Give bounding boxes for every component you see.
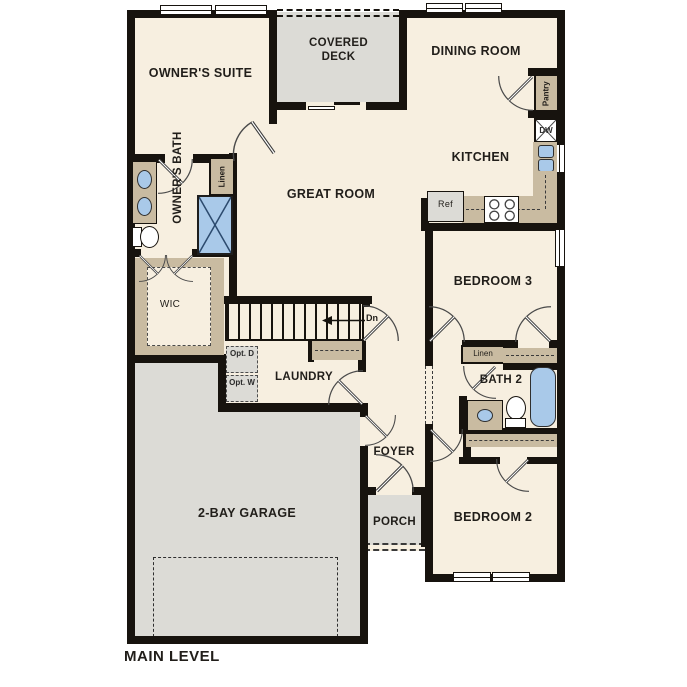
sliding-door-panel-2 (308, 106, 335, 110)
room-label-owners-suite: OWNER'S SUITE (143, 66, 258, 81)
door-bedroom2-main (496, 459, 529, 492)
owners-linen-label: Linen (217, 160, 226, 194)
room-label-bath2: BATH 2 (478, 374, 524, 388)
porch-edge-dashed (364, 543, 425, 545)
window-bedroom2-2 (492, 572, 530, 582)
wall-right-exterior (557, 10, 565, 582)
outside-below-porch (368, 551, 425, 584)
room-label-bedroom2: BEDROOM 2 (430, 510, 556, 525)
bath2-toilet-bowl (506, 396, 526, 420)
door-owners-suite (232, 115, 278, 163)
counter-dashed-v (545, 175, 546, 209)
window-suite-1 (160, 5, 212, 15)
room-label-porch: PORCH (366, 516, 423, 530)
garage-door-dashed (153, 557, 338, 637)
plan-title: MAIN LEVEL (124, 648, 324, 666)
wall-foyer-porch-a (360, 487, 376, 495)
bath2-tub (530, 367, 556, 427)
room-label-laundry: LAUNDRY (256, 371, 352, 385)
owners-sink-1 (137, 170, 152, 189)
window-bedroom3 (555, 229, 565, 267)
floor-plan: Dn Linen Pantry DW (0, 0, 687, 687)
room-label-covered-deck: COVERED DECK (296, 37, 381, 64)
window-bedroom2-1 (453, 572, 491, 582)
dishwasher-label: DW (534, 126, 558, 135)
room-label-kitchen: KITCHEN (428, 150, 533, 165)
door-garage-foyer (365, 415, 396, 446)
hall-linen-label: Linen (461, 349, 505, 358)
room-label-owners-bath: OWNER'S BATH (172, 164, 186, 224)
owners-toilet-bowl (140, 226, 159, 248)
window-dining-1 (426, 3, 463, 13)
window-dining-2 (465, 3, 502, 13)
room-label-bedroom3: BEDROOM 3 (430, 274, 556, 289)
bedroom2-closet-rod (469, 440, 554, 441)
optional-washer-box: Opt. W (226, 375, 258, 402)
wall-wic-bottom (127, 354, 232, 363)
wall-left-exterior (127, 10, 135, 644)
room-label-dining-room: DINING ROOM (430, 44, 522, 59)
room-label-great-room: GREAT ROOM (286, 187, 376, 202)
door-bedroom2-hall (430, 429, 463, 462)
door-bedroom3-right (515, 306, 551, 342)
door-front-entry (376, 454, 414, 492)
door-bedroom3-left (429, 306, 465, 342)
hall-cased-opening (425, 366, 433, 424)
stairs-direction-arrow (321, 314, 365, 327)
shelf-under-stairs-rod (315, 350, 359, 351)
bath2-toilet-tank (505, 418, 526, 428)
wall-deck-right (399, 10, 407, 110)
window-suite-2 (215, 5, 267, 15)
wall-pantry-top (528, 68, 565, 76)
hall-shelf-rod (506, 355, 554, 356)
shower-x (199, 197, 231, 253)
door-wic-left (139, 255, 166, 282)
kitchen-sink-bowl-1 (538, 145, 554, 158)
refrigerator-label: Ref (427, 199, 464, 210)
optional-dryer-box: Opt. D (226, 346, 258, 373)
sliding-door-panel-1 (334, 102, 360, 105)
wall-b2closet-bottom-b (527, 457, 565, 464)
wall-pantry-bottom (528, 110, 565, 118)
door-wic-right (166, 255, 193, 282)
room-label-foyer: FOYER (367, 446, 421, 460)
room-label-garage: 2-BAY GARAGE (194, 506, 300, 521)
wall-garage-bottom (127, 636, 368, 644)
wall-kitchen-bottom (421, 223, 565, 231)
wall-b2closet-bottom-a (459, 457, 500, 464)
wall-garage-right-b (360, 446, 368, 644)
porch-edge-dashed2 (364, 549, 425, 551)
wall-b3-bottom-c (549, 340, 565, 348)
pantry-label: Pantry (541, 77, 550, 111)
stove-burners (485, 197, 518, 222)
door-stairs-hall (363, 305, 399, 341)
bath2-sink (477, 409, 493, 422)
owners-shower (197, 195, 233, 255)
room-label-wic: WIC (150, 299, 190, 311)
door-pantry (498, 76, 533, 111)
stove (484, 196, 519, 223)
owners-sink-2 (137, 197, 152, 216)
deck-edge-dashed (277, 9, 399, 17)
